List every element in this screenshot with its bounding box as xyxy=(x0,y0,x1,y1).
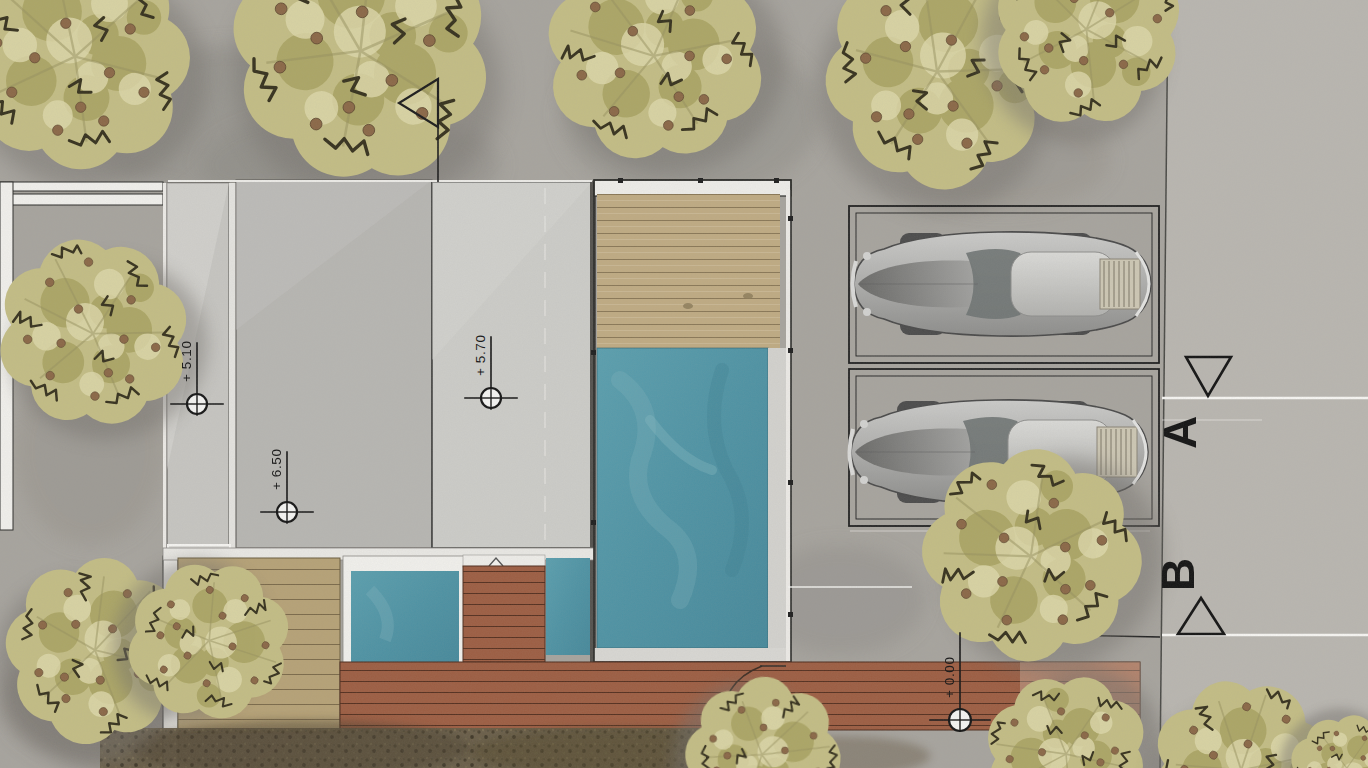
site-plan-drawing: + 5.10 + 6.50 + 5.70 + 0.00 xyxy=(0,0,1368,768)
texture-overlay xyxy=(0,0,1368,768)
site-plan-screenshot: + 5.10 + 6.50 + 5.70 + 0.00 xyxy=(0,0,1368,768)
